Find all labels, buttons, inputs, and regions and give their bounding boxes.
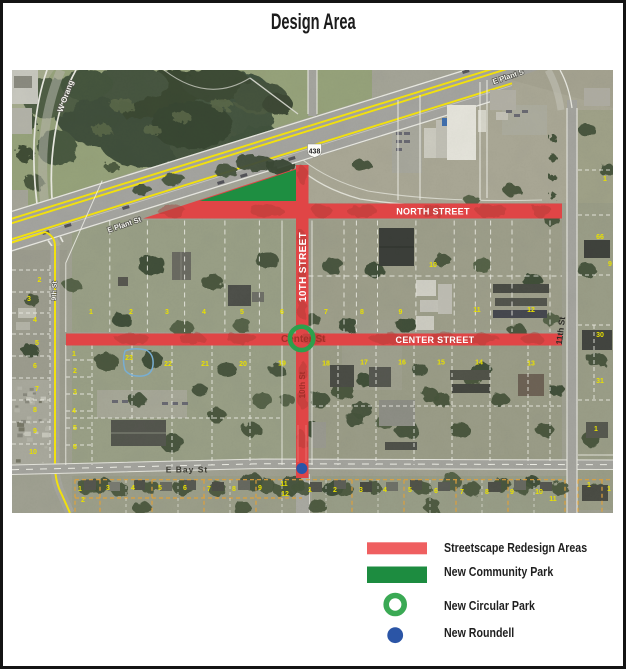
svg-text:3: 3 — [165, 309, 169, 316]
svg-text:7: 7 — [35, 386, 39, 393]
svg-text:6: 6 — [33, 363, 37, 370]
svg-text:9: 9 — [399, 309, 403, 316]
svg-text:1: 1 — [587, 482, 591, 489]
svg-text:3: 3 — [27, 296, 31, 303]
svg-text:31: 31 — [596, 378, 604, 385]
svg-text:7: 7 — [460, 489, 464, 496]
svg-text:20: 20 — [239, 361, 247, 368]
svg-text:5: 5 — [158, 485, 162, 492]
svg-text:E Bay St: E Bay St — [166, 465, 209, 475]
svg-text:9: 9 — [608, 261, 612, 268]
svg-text:7: 7 — [324, 309, 328, 316]
svg-text:9: 9 — [258, 485, 262, 492]
svg-text:1: 1 — [72, 351, 76, 358]
svg-text:6: 6 — [434, 488, 438, 495]
svg-text:2: 2 — [38, 277, 42, 284]
svg-text:11: 11 — [549, 496, 557, 503]
svg-text:17: 17 — [360, 360, 368, 367]
svg-text:1: 1 — [78, 486, 82, 493]
svg-text:4: 4 — [72, 408, 76, 415]
svg-text:22: 22 — [164, 361, 172, 368]
svg-text:30: 30 — [596, 332, 604, 339]
svg-text:8: 8 — [33, 407, 37, 414]
svg-text:1: 1 — [603, 176, 607, 183]
svg-text:5: 5 — [73, 425, 77, 432]
svg-text:4: 4 — [202, 309, 206, 316]
svg-text:3: 3 — [106, 485, 110, 492]
svg-text:2: 2 — [81, 497, 85, 504]
svg-text:5: 5 — [408, 487, 412, 494]
svg-text:10: 10 — [429, 262, 437, 269]
svg-text:9: 9 — [510, 489, 514, 496]
svg-text:14: 14 — [475, 360, 483, 367]
svg-text:10: 10 — [535, 489, 543, 496]
svg-text:8: 8 — [232, 486, 236, 493]
svg-text:11: 11 — [473, 307, 481, 314]
svg-text:2: 2 — [73, 368, 77, 375]
svg-text:21: 21 — [201, 361, 209, 368]
svg-text:3: 3 — [359, 487, 363, 494]
svg-text:NORTH STREET: NORTH STREET — [396, 206, 470, 216]
svg-text:CENTER STREET: CENTER STREET — [396, 335, 475, 345]
svg-text:12: 12 — [281, 491, 289, 498]
svg-text:5: 5 — [35, 340, 39, 347]
svg-text:438: 438 — [309, 149, 321, 156]
svg-text:1: 1 — [89, 309, 93, 316]
svg-text:1: 1 — [308, 487, 312, 494]
svg-text:10TH STREET: 10TH STREET — [298, 232, 309, 302]
svg-text:6: 6 — [280, 309, 284, 316]
svg-text:2: 2 — [129, 309, 133, 316]
svg-text:1: 1 — [594, 426, 598, 433]
svg-text:8: 8 — [485, 489, 489, 496]
svg-text:10th St: 10th St — [298, 371, 307, 398]
svg-text:19: 19 — [278, 361, 286, 368]
svg-text:4: 4 — [33, 317, 37, 324]
svg-text:4: 4 — [383, 487, 387, 494]
svg-text:9th St: 9th St — [51, 280, 59, 300]
svg-text:2: 2 — [333, 487, 337, 494]
svg-text:10: 10 — [29, 449, 37, 456]
svg-text:4: 4 — [131, 485, 135, 492]
svg-text:7: 7 — [207, 486, 211, 493]
svg-text:6: 6 — [183, 485, 187, 492]
svg-text:8: 8 — [360, 309, 364, 316]
svg-text:13: 13 — [527, 361, 535, 368]
svg-text:6: 6 — [73, 444, 77, 451]
svg-text:12: 12 — [527, 307, 535, 314]
svg-text:11: 11 — [280, 481, 288, 488]
svg-text:18: 18 — [322, 361, 330, 368]
svg-text:9: 9 — [33, 428, 37, 435]
svg-text:3: 3 — [73, 389, 77, 396]
svg-text:16: 16 — [398, 360, 406, 367]
svg-text:66: 66 — [596, 234, 604, 241]
svg-text:23: 23 — [125, 355, 133, 362]
svg-text:5: 5 — [240, 309, 244, 316]
svg-text:15: 15 — [437, 360, 445, 367]
svg-text:1: 1 — [607, 486, 611, 493]
